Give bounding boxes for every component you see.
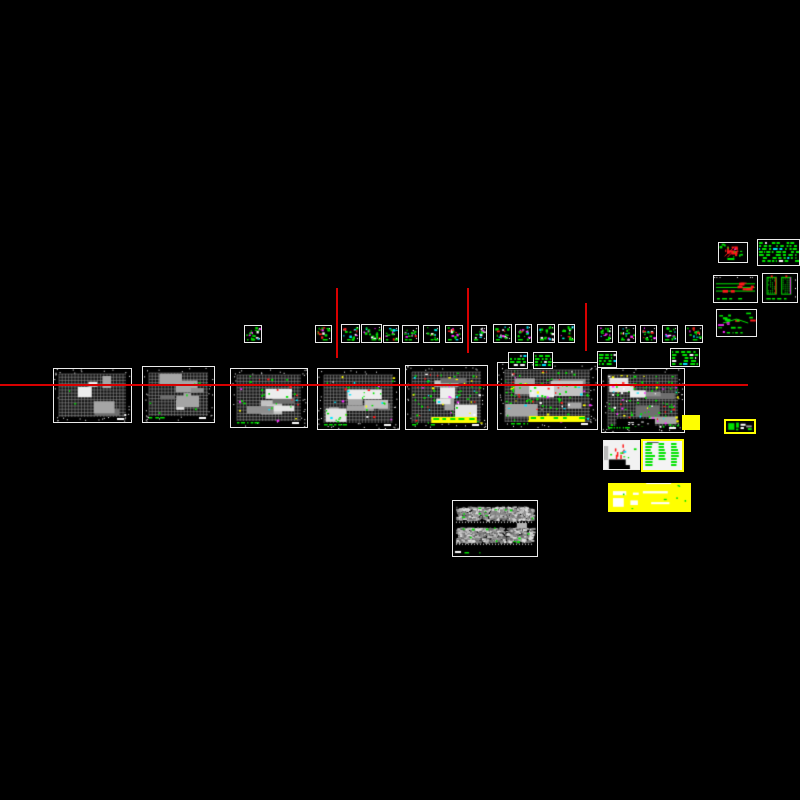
sheet-detail-10-content <box>494 325 511 342</box>
sheet-detail-12-content <box>538 325 554 342</box>
sheet-detail-red-c[interactable] <box>713 275 758 303</box>
sheet-floor-plan-01-content <box>54 369 131 422</box>
sheet-floor-plan-05[interactable] <box>405 365 488 430</box>
sheet-detail-06[interactable] <box>402 325 419 343</box>
sheet-detail-red-e-content <box>717 310 756 336</box>
sheet-note-04-content <box>671 349 699 366</box>
sheet-elevation-content <box>453 501 537 556</box>
sheet-floor-plan-04-content <box>318 369 399 429</box>
sheet-detail-01[interactable] <box>244 325 262 343</box>
sheet-floor-plan-07[interactable] <box>601 368 685 433</box>
sheet-detail-18[interactable] <box>685 325 703 343</box>
sheet-detail-red-e[interactable] <box>716 309 757 337</box>
sheet-note-02[interactable] <box>533 352 553 369</box>
sheet-detail-17-content <box>663 326 677 342</box>
sheet-detail-16-content <box>641 326 656 342</box>
sheet-detail-red-a-content <box>719 243 747 262</box>
sheet-detail-12[interactable] <box>537 324 555 343</box>
construction-line-horizontal[interactable] <box>0 384 748 386</box>
sheet-callout-highlight[interactable] <box>724 419 756 434</box>
sheet-note-01[interactable] <box>508 352 528 369</box>
sheet-detail-15[interactable] <box>618 325 636 343</box>
construction-line-vertical-3[interactable] <box>585 303 587 351</box>
highlight-yellow-rect-content <box>682 415 700 430</box>
sheet-hatch-detail-content <box>763 274 797 302</box>
sheet-detail-15-content <box>619 326 635 342</box>
sheet-floor-plan-02-content <box>143 367 214 422</box>
sheet-note-04[interactable] <box>670 348 700 367</box>
sheet-schedule-highlight-content <box>643 441 682 470</box>
sheet-detail-14[interactable] <box>597 325 613 343</box>
sheet-detail-13-content <box>559 325 574 342</box>
sheet-floor-plan-05-content <box>406 366 487 429</box>
sheet-note-03-content <box>598 352 616 367</box>
highlight-yellow-rect[interactable] <box>682 415 700 430</box>
construction-line-vertical-2[interactable] <box>467 288 469 353</box>
sheet-detail-07-content <box>424 326 439 342</box>
sheet-detail-11-content <box>516 325 531 342</box>
sheet-detail-03[interactable] <box>341 324 360 343</box>
sheet-detail-01-content <box>245 326 261 342</box>
sheet-callout-highlight-content <box>726 421 754 432</box>
sheet-floor-plan-03[interactable] <box>230 368 308 428</box>
sheet-hatch-detail[interactable] <box>762 273 798 303</box>
sheet-detail-06-content <box>403 326 418 342</box>
sheet-floor-plan-06[interactable] <box>497 362 598 430</box>
highlight-yellow-block-content <box>608 483 691 512</box>
sheet-detail-16[interactable] <box>640 325 657 343</box>
sheet-schedule-highlight[interactable] <box>641 439 684 472</box>
sheet-detail-18-content <box>686 326 702 342</box>
sheet-detail-03-content <box>342 325 359 342</box>
sheet-note-top-right[interactable] <box>757 239 800 266</box>
sheet-detail-04-content <box>362 325 381 342</box>
sheet-detail-11[interactable] <box>515 324 532 343</box>
sheet-floor-plan-03-content <box>231 369 307 427</box>
sheet-detail-09[interactable] <box>471 325 487 343</box>
sheet-detail-05-content <box>384 326 398 342</box>
sheet-detail-10[interactable] <box>493 324 512 343</box>
sheet-floor-plan-01[interactable] <box>53 368 132 423</box>
sheet-detail-05[interactable] <box>383 325 399 343</box>
sheet-white-note[interactable] <box>603 440 640 470</box>
sheet-note-02-content <box>534 353 552 368</box>
sheet-floor-plan-07-content <box>602 369 684 432</box>
sheet-detail-red-c-content <box>714 276 757 302</box>
sheet-detail-08-content <box>446 326 462 342</box>
sheet-note-top-right-content <box>758 240 799 265</box>
sheet-detail-02-content <box>316 326 331 342</box>
sheet-detail-17[interactable] <box>662 325 678 343</box>
sheet-detail-02[interactable] <box>315 325 332 343</box>
sheet-detail-04[interactable] <box>361 324 382 343</box>
construction-line-vertical-1[interactable] <box>336 288 338 358</box>
sheet-note-01-content <box>509 353 527 368</box>
sheet-elevation[interactable] <box>452 500 538 557</box>
cad-model-space[interactable] <box>0 0 800 800</box>
sheet-detail-13[interactable] <box>558 324 575 343</box>
sheet-detail-08[interactable] <box>445 325 463 343</box>
sheet-floor-plan-02[interactable] <box>142 366 215 423</box>
highlight-yellow-block[interactable] <box>608 483 691 512</box>
sheet-note-03[interactable] <box>597 351 617 368</box>
sheet-detail-14-content <box>598 326 612 342</box>
sheet-detail-09-content <box>472 326 486 342</box>
sheet-floor-plan-06-content <box>498 363 597 429</box>
sheet-detail-red-a[interactable] <box>718 242 748 263</box>
sheet-detail-07[interactable] <box>423 325 440 343</box>
sheet-floor-plan-04[interactable] <box>317 368 400 430</box>
sheet-white-note-content <box>604 441 639 469</box>
